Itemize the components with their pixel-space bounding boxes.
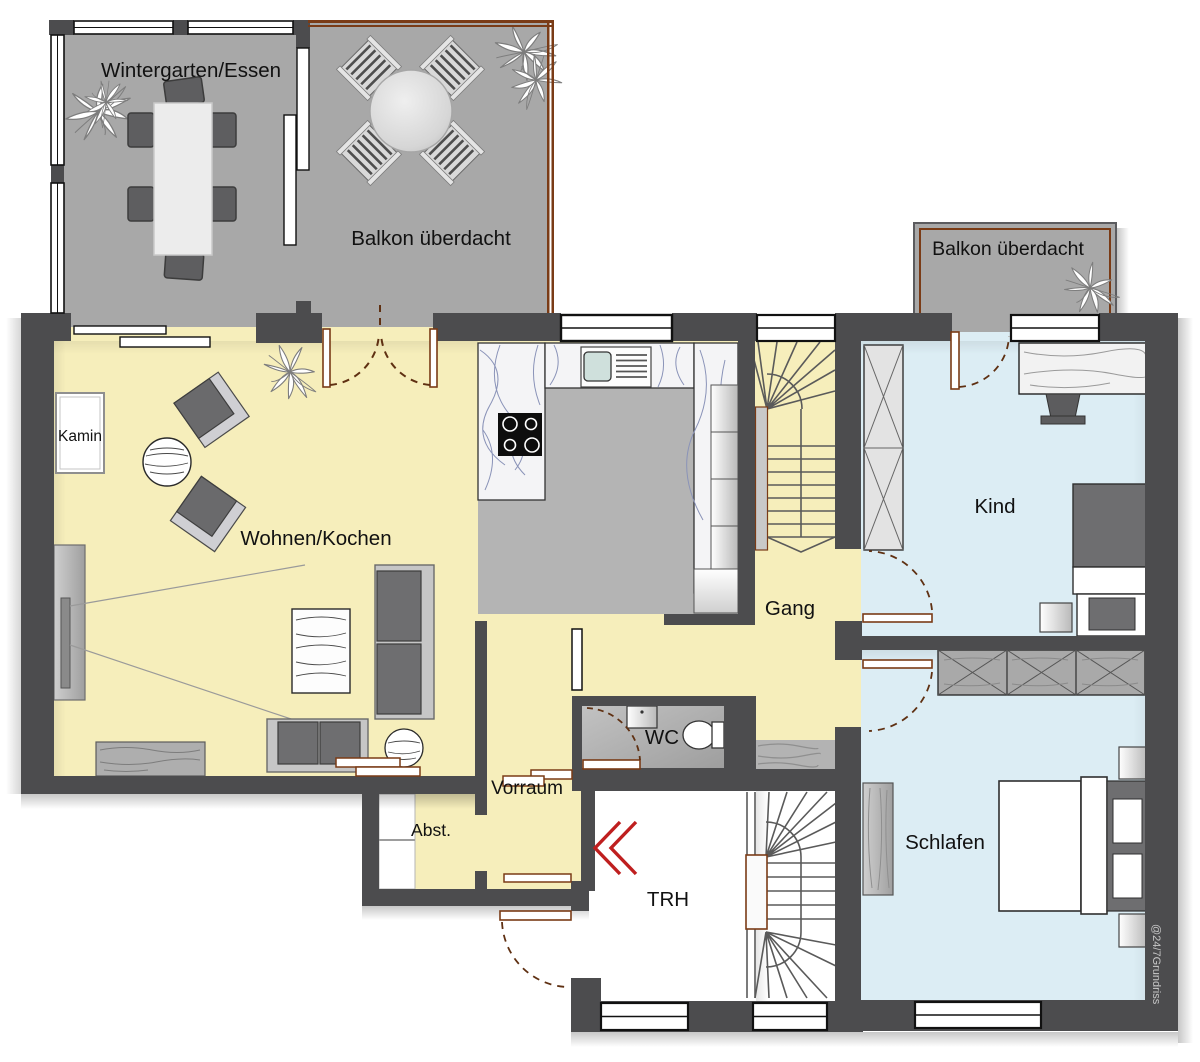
svg-text:Kamin: Kamin xyxy=(58,428,102,445)
svg-text:Wohnen/Kochen: Wohnen/Kochen xyxy=(240,527,391,550)
svg-text:@24/7Grundriss: @24/7Grundriss xyxy=(1150,924,1162,1005)
svg-text:WC: WC xyxy=(645,726,679,749)
svg-text:Gang: Gang xyxy=(765,597,815,620)
svg-text:Wintergarten/Essen: Wintergarten/Essen xyxy=(101,59,281,82)
svg-text:Vorraum: Vorraum xyxy=(491,778,563,799)
svg-text:Schlafen: Schlafen xyxy=(905,831,985,854)
svg-text:Balkon überdacht: Balkon überdacht xyxy=(932,238,1084,260)
svg-text:TRH: TRH xyxy=(647,888,689,911)
svg-text:Kind: Kind xyxy=(974,495,1015,518)
svg-text:Balkon überdacht: Balkon überdacht xyxy=(351,227,511,250)
svg-text:Abst.: Abst. xyxy=(411,820,451,840)
